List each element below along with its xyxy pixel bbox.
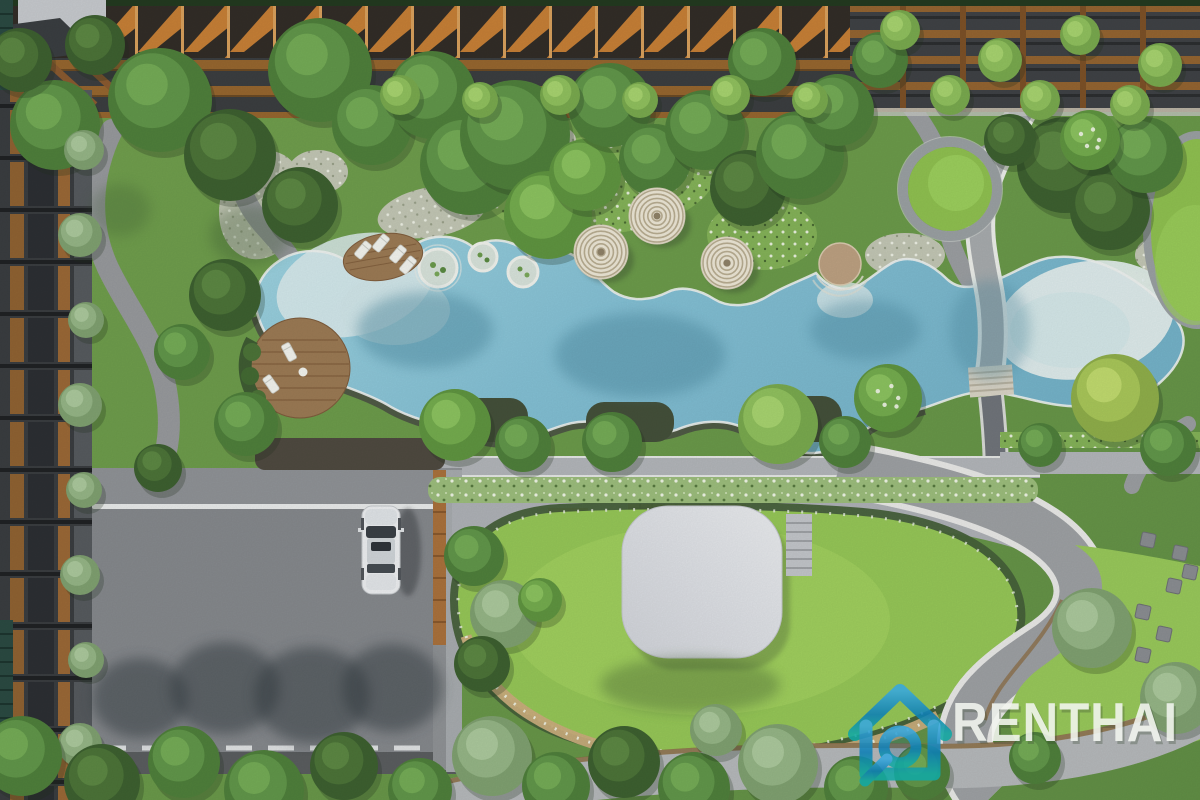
brand-text: RENTHAI: [952, 691, 1178, 753]
photo-grain-overlay: [0, 0, 1200, 800]
scene-canvas: RENTHAI RENTHAI: [0, 0, 1200, 800]
aerial-condo-landscape-render: RENTHAI RENTHAI: [0, 0, 1200, 800]
